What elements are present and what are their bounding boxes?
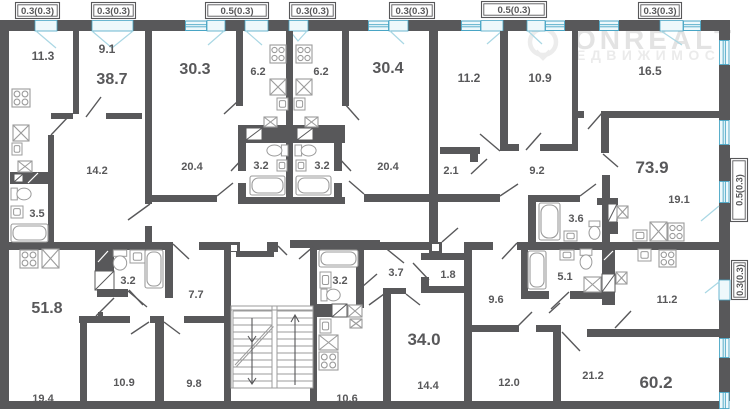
svg-text:21.2: 21.2 [582, 370, 603, 382]
svg-text:19.4: 19.4 [32, 393, 54, 405]
svg-text:30.4: 30.4 [372, 60, 403, 77]
svg-text:12.0: 12.0 [498, 377, 519, 389]
svg-text:ЕДВИЖИМОС: ЕДВИЖИМОС [576, 47, 720, 63]
svg-text:34.0: 34.0 [407, 330, 440, 349]
svg-text:0.5(0.3): 0.5(0.3) [734, 174, 744, 206]
svg-text:11.2: 11.2 [458, 71, 481, 85]
svg-text:0.3(0.3): 0.3(0.3) [735, 264, 745, 296]
svg-text:11.3: 11.3 [32, 49, 55, 63]
svg-text:10.9: 10.9 [113, 377, 134, 389]
svg-text:3.6: 3.6 [568, 213, 583, 225]
svg-text:20.4: 20.4 [377, 161, 399, 173]
svg-text:1.8: 1.8 [440, 269, 455, 281]
svg-text:0.3(0.3): 0.3(0.3) [97, 6, 130, 17]
svg-text:10.9: 10.9 [528, 71, 552, 85]
svg-text:16.5: 16.5 [638, 64, 662, 78]
svg-text:0.3(0.3): 0.3(0.3) [395, 6, 428, 17]
svg-text:3.2: 3.2 [120, 275, 135, 287]
svg-text:0.3(0.3): 0.3(0.3) [21, 6, 54, 17]
svg-text:60.2: 60.2 [639, 373, 672, 392]
svg-text:0.3(0.3): 0.3(0.3) [643, 6, 676, 17]
svg-text:0.5(0.3): 0.5(0.3) [497, 5, 530, 16]
svg-text:20.4: 20.4 [181, 161, 203, 173]
svg-text:6.2: 6.2 [250, 66, 265, 78]
svg-text:14.4: 14.4 [417, 380, 439, 392]
svg-text:30.3: 30.3 [179, 61, 210, 78]
svg-text:19.1: 19.1 [668, 194, 689, 206]
svg-text:9.8: 9.8 [186, 378, 201, 390]
svg-text:0.3(0.3): 0.3(0.3) [296, 6, 329, 17]
svg-text:3.5: 3.5 [29, 208, 44, 220]
svg-text:9.2: 9.2 [529, 165, 544, 177]
svg-text:5.1: 5.1 [557, 271, 572, 283]
svg-text:38.7: 38.7 [96, 71, 127, 88]
svg-text:10.6: 10.6 [336, 393, 357, 405]
svg-text:7.7: 7.7 [188, 289, 203, 301]
svg-text:73.9: 73.9 [635, 158, 668, 177]
svg-text:3.7: 3.7 [388, 267, 403, 279]
svg-text:51.8: 51.8 [31, 300, 62, 317]
svg-text:3.2: 3.2 [253, 160, 268, 172]
svg-text:3.2: 3.2 [314, 160, 329, 172]
svg-text:9.6: 9.6 [488, 294, 503, 306]
svg-text:14.2: 14.2 [86, 165, 107, 177]
svg-text:3.2: 3.2 [332, 275, 347, 287]
svg-text:2.1: 2.1 [443, 165, 458, 177]
svg-text:6.2: 6.2 [313, 66, 328, 78]
svg-text:9.1: 9.1 [99, 42, 116, 56]
svg-text:0.5(0.3): 0.5(0.3) [220, 6, 253, 17]
svg-text:11.2: 11.2 [657, 294, 678, 306]
